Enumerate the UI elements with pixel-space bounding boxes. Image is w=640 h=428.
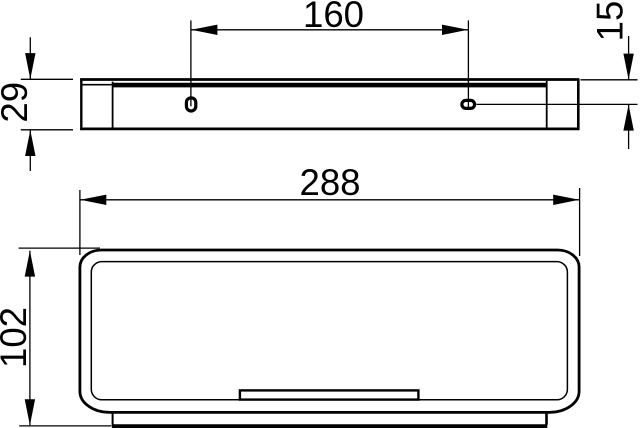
svg-text:102: 102 <box>0 307 34 368</box>
svg-text:288: 288 <box>299 162 360 203</box>
svg-text:15: 15 <box>590 1 631 42</box>
svg-text:160: 160 <box>303 0 364 35</box>
svg-text:29: 29 <box>0 82 35 123</box>
